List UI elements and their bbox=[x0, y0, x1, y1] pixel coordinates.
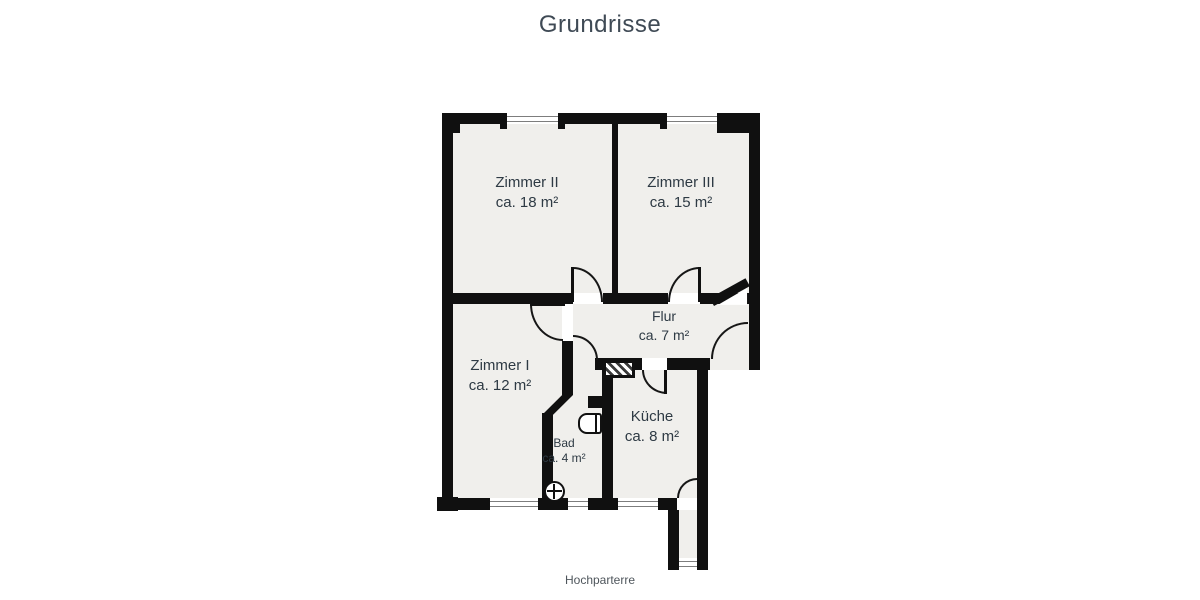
room-label-zimmer2: Zimmer II ca. 18 m² bbox=[447, 173, 607, 213]
wall-top-jamb-2 bbox=[558, 113, 565, 129]
room-area: ca. 7 m² bbox=[584, 326, 744, 345]
room-label-zimmer3: Zimmer III ca. 15 m² bbox=[601, 173, 761, 213]
wall-kueche-right bbox=[697, 370, 708, 570]
door-opening-zimmer1 bbox=[562, 304, 573, 341]
page-title: Grundrisse bbox=[0, 11, 1200, 39]
room-name: Küche bbox=[572, 407, 732, 427]
room-label-zimmer1: Zimmer I ca. 12 m² bbox=[420, 356, 580, 396]
window-glass bbox=[618, 501, 658, 507]
window-zimmer1 bbox=[490, 498, 538, 510]
room-label-flur: Flur ca. 7 m² bbox=[584, 307, 744, 345]
room-name: Flur bbox=[584, 307, 744, 326]
window-zimmer3 bbox=[667, 113, 717, 124]
door-leaf-kueche bbox=[664, 370, 667, 394]
door-opening-kueche bbox=[642, 358, 667, 370]
room-area: ca. 12 m² bbox=[420, 376, 580, 396]
room-name: Bad bbox=[484, 436, 644, 451]
window-kueche bbox=[618, 498, 658, 510]
floor-caption: Hochparterre bbox=[0, 573, 1200, 587]
room-name: Zimmer III bbox=[601, 173, 761, 193]
room-name: Zimmer II bbox=[447, 173, 607, 193]
shaft-hatch bbox=[603, 360, 635, 378]
room-area: ca. 18 m² bbox=[447, 193, 607, 213]
window-glass bbox=[667, 116, 717, 122]
door-leaf-zimmer2 bbox=[571, 267, 574, 302]
window-glass bbox=[568, 501, 588, 507]
window-zimmer2 bbox=[507, 113, 558, 124]
room-name: Zimmer I bbox=[420, 356, 580, 376]
window-glass bbox=[490, 501, 538, 507]
window-porch bbox=[679, 558, 697, 570]
floorplan-page: Grundrisse bbox=[0, 0, 1200, 600]
wall-top-jamb-1 bbox=[500, 113, 507, 129]
wall-top-jamb-3 bbox=[660, 113, 667, 129]
window-bad bbox=[568, 498, 588, 510]
room-area: ca. 15 m² bbox=[601, 193, 761, 213]
wall-right-upper bbox=[749, 113, 760, 370]
window-glass bbox=[679, 561, 697, 567]
door-leaf-zimmer1 bbox=[530, 303, 565, 306]
room-label-bad: Bad ca. 4 m² bbox=[484, 436, 644, 466]
room-area: ca. 4 m² bbox=[484, 451, 644, 466]
door-opening-backdoor bbox=[677, 498, 697, 510]
door-leaf-zimmer3 bbox=[698, 267, 701, 302]
wall-bottom-corner-left bbox=[437, 497, 458, 511]
wall-porch-left bbox=[668, 510, 679, 570]
sink-cross-v bbox=[553, 484, 555, 499]
window-glass bbox=[507, 116, 558, 122]
